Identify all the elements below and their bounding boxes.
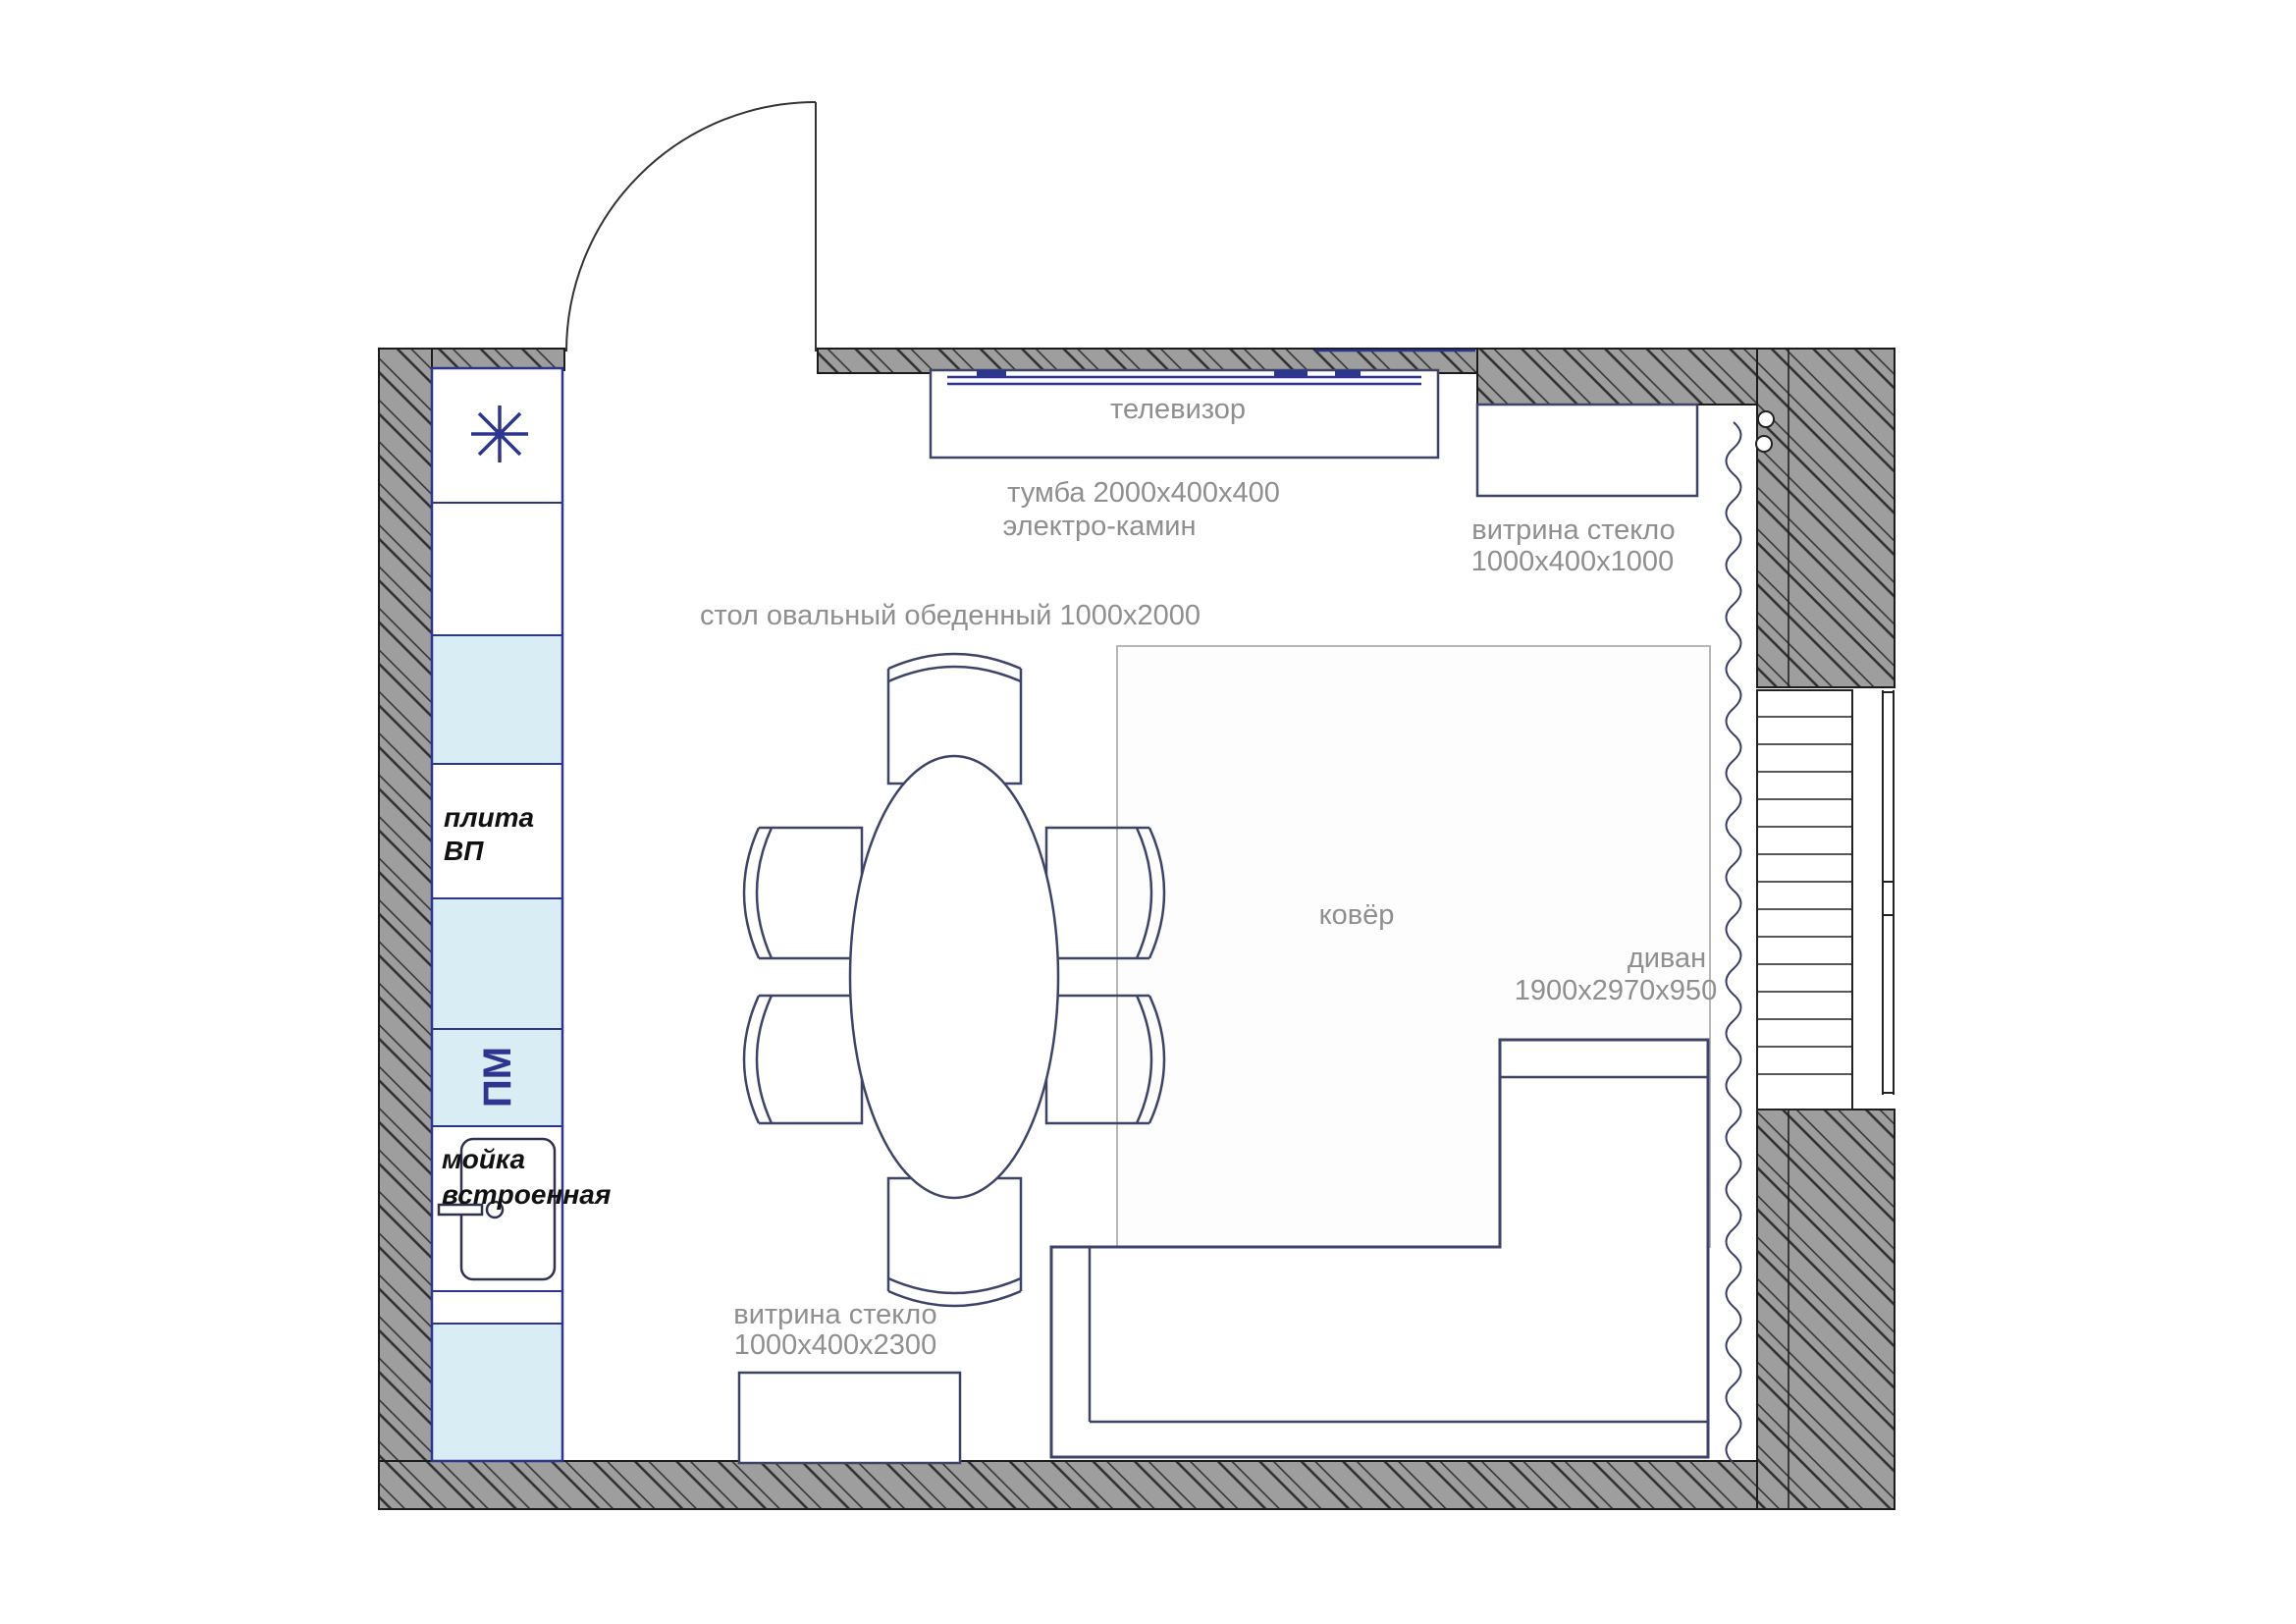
kitchen-cabinet-strip: плита ВП ПМ мойка встроенная xyxy=(432,368,611,1461)
curtain-rod-bracket-bottom xyxy=(1756,436,1772,452)
sofa-dim-label: 1900х2970х950 xyxy=(1515,975,1717,1006)
vitrine-top-name-label: витрина стекло xyxy=(1471,514,1675,546)
dining-group xyxy=(744,654,1164,1306)
curtain-wave-line xyxy=(1727,422,1741,1463)
kitchen-cell-blue-2 xyxy=(432,898,562,1029)
wall-bottom xyxy=(379,1461,1895,1509)
kitchen-cell-blue-1 xyxy=(432,635,562,764)
carpet-label: ковёр xyxy=(1319,899,1395,931)
tv-label: телевизор xyxy=(1110,394,1246,425)
curtain-rod-bracket-top xyxy=(1758,411,1774,427)
chair-left-lower xyxy=(744,996,862,1123)
stove-label-line2: ВП xyxy=(444,836,484,866)
vitrine-bottom xyxy=(739,1373,960,1463)
wall-right-top-pier xyxy=(1757,349,1895,687)
vitrine-bottom-name-label: витрина стекло xyxy=(733,1299,936,1330)
wall-top-right xyxy=(1477,349,1757,405)
wall-right-bottom-pier xyxy=(1757,1110,1895,1509)
vitrine-bottom-dim-label: 1000х400х2300 xyxy=(734,1329,936,1361)
door-swing-arc xyxy=(566,102,816,352)
sink-label-line1: мойка xyxy=(442,1144,525,1174)
dining-table-label: стол овальный обеденный 1000х2000 xyxy=(700,600,1201,631)
tv-bracket-mark-far-right xyxy=(1335,370,1361,377)
stove-label-line1: плита xyxy=(444,802,534,833)
tv-bracket-mark-right xyxy=(1274,370,1308,377)
dining-table-oval xyxy=(850,756,1058,1198)
entry-door xyxy=(566,102,816,352)
floor-plan-page: плита ВП ПМ мойка встроенная телевизор т… xyxy=(0,0,2296,1624)
wall-left xyxy=(379,349,432,1509)
fridge-asterisk-icon xyxy=(471,406,528,462)
tv-stand-dim-label: тумба 2000х400х400 xyxy=(1007,477,1280,509)
sink-label-line2: встроенная xyxy=(442,1179,611,1210)
vitrine-top xyxy=(1477,405,1697,496)
dishwasher-label: ПМ xyxy=(476,1047,519,1108)
chair-left-upper xyxy=(744,828,862,958)
window-with-radiator xyxy=(1757,690,1894,1110)
vitrine-top-dim-label: 1000х400х1000 xyxy=(1471,546,1674,577)
kitchen-cell-blue-3 xyxy=(432,1324,562,1461)
floor-plan-drawing: плита ВП ПМ мойка встроенная телевизор т… xyxy=(0,0,2296,1624)
sofa-name-label: диван xyxy=(1628,943,1706,974)
tv-bracket-mark-left xyxy=(977,370,1006,377)
fireplace-label: электро-камин xyxy=(1002,511,1196,542)
window-glazing xyxy=(1883,690,1894,1095)
